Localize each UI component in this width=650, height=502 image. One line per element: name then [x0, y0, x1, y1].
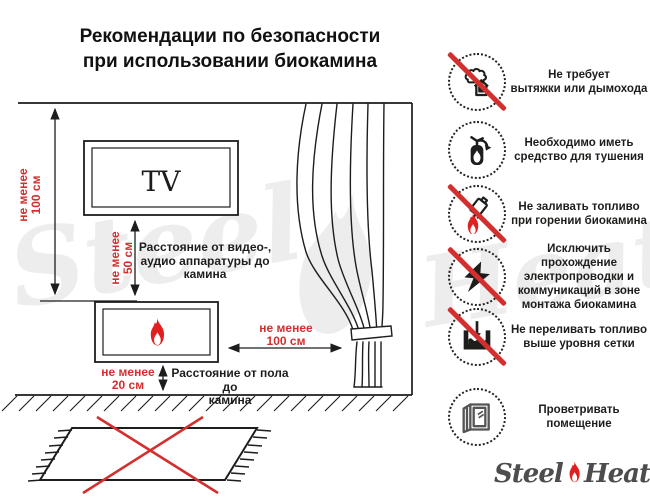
rule-text: Необходимо иметь средство для тушения: [510, 136, 648, 164]
rule-extinguisher: Необходимо иметь средство для тушения: [448, 121, 648, 179]
floor-clearance-caption: Расстояние от пола до камина: [164, 367, 296, 408]
logo-flame-icon: [566, 454, 583, 490]
infographic-canvas: Steel Heat Рекомендации по безопасности …: [0, 0, 650, 502]
rule-no-wiring: Исключить прохождение электропроводки и …: [448, 248, 648, 306]
brand-logo: Steel Heat: [494, 450, 650, 498]
curtain-clearance-label: не менее 100 см: [241, 322, 331, 348]
rule-text: Проветривать помещение: [510, 403, 648, 431]
rug: [28, 417, 271, 493]
logo-steel-text: Steel: [494, 459, 563, 489]
rule-text: Исключить прохождение электропроводки и …: [510, 242, 648, 312]
open-window-icon: [448, 388, 506, 446]
ceiling-clearance-label: не менее 100 см: [17, 164, 43, 226]
fire-extinguisher-icon: [448, 121, 506, 179]
page-title: Рекомендации по безопасности при использ…: [38, 24, 422, 74]
rule-ventilate: Проветривать помещение: [448, 388, 648, 446]
tv-clearance-caption: Расстояние от видео-, аудио аппаратуры д…: [135, 241, 275, 282]
rule-no-refuel-while-burning: Не заливать топливо при горении биокамин…: [448, 185, 648, 243]
tv-label: TV: [142, 165, 182, 198]
rule-text: Не переливать топливо выше уровня сетки: [510, 323, 648, 351]
floor-clearance-label: не менее 20 см: [95, 366, 161, 392]
tv-box: TV: [84, 141, 238, 215]
tv-clearance-label: не менее 50 см: [109, 227, 135, 289]
rule-text: Не заливать топливо при горении биокамин…: [510, 200, 648, 228]
rule-text: Не требует вытяжки или дымохода: [510, 68, 648, 96]
room-diagram: TV: [0, 85, 445, 502]
logo-heat-text: Heat: [584, 459, 650, 489]
rule-no-overfill: Не переливать топливо выше уровня сетки: [448, 308, 648, 366]
curtain-tieback: [351, 326, 392, 340]
rule-no-chimney: Не требует вытяжки или дымохода: [448, 53, 648, 111]
